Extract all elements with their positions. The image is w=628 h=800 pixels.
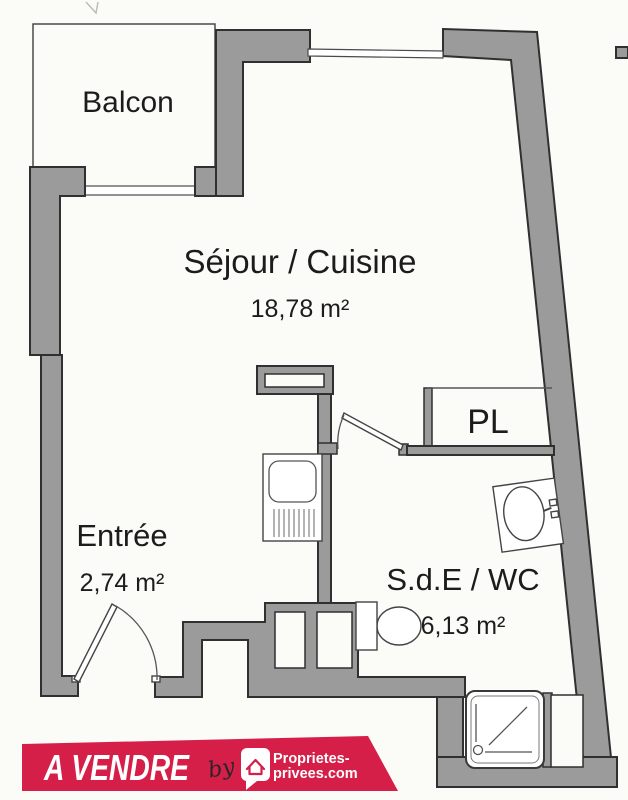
shower-niche <box>551 695 583 767</box>
balcony-label: Balcon <box>82 86 174 119</box>
north-mark-icon <box>86 2 98 13</box>
closet-label: PL <box>467 403 509 441</box>
wall-right-stub <box>616 47 628 58</box>
kitchen-duct-hollow <box>265 374 324 387</box>
brand-line2: privees.com <box>273 766 358 782</box>
wall-top-left <box>216 30 310 196</box>
banner-by-text: by <box>206 754 237 783</box>
bathroom-area: 6,13 m² <box>421 612 506 640</box>
entrance-area: 2,74 m² <box>80 569 165 597</box>
top-window <box>308 49 443 58</box>
toilet-icon <box>356 602 421 650</box>
living-room-label: Séjour / Cuisine <box>184 243 417 280</box>
balcony-window <box>85 186 195 195</box>
wall-door-stub-left <box>318 443 337 454</box>
door-tick-right <box>152 676 160 682</box>
washbasin-tap-2 <box>551 511 559 518</box>
entrance-label: Entrée <box>76 518 167 553</box>
kitchen-counter <box>263 454 322 541</box>
duct-niche-2 <box>317 612 352 668</box>
bathroom-door <box>338 413 403 450</box>
wall-left-upper <box>30 167 85 355</box>
sale-banner: A VENDRE by Proprietes- privees.com <box>22 736 398 791</box>
duct-niche-1 <box>275 612 305 668</box>
shower-icon <box>466 691 544 768</box>
floor-plan-drawing: Balcon Séjour / Cuisine 18,78 m² PL Entr… <box>0 0 628 800</box>
banner-status-text: A VENDRE <box>43 747 190 788</box>
toilet-bowl <box>377 607 421 645</box>
washbasin-icon <box>493 478 564 552</box>
logo-box <box>241 748 270 781</box>
kitchen-sink-icon <box>263 454 322 541</box>
washbasin-tap-1 <box>549 499 557 506</box>
wall-closet-bottom <box>407 446 554 455</box>
brand-line1: Proprietes- <box>273 751 350 767</box>
wall-left-lower <box>41 355 78 696</box>
living-room-area: 18,78 m² <box>251 295 350 323</box>
entrance-door <box>72 604 160 682</box>
walls <box>30 29 628 787</box>
bathroom-label: S.d.E / WC <box>386 562 539 597</box>
entrance-door-arc <box>116 606 157 680</box>
floor-plan: Balcon Séjour / Cuisine 18,78 m² PL Entr… <box>0 0 628 800</box>
bathroom-door-leaf <box>342 413 403 450</box>
wall-closet-left <box>424 388 432 450</box>
entrance-door-leaf <box>74 604 117 682</box>
toilet-tank <box>356 602 377 650</box>
bathroom-door-arc <box>338 415 344 449</box>
